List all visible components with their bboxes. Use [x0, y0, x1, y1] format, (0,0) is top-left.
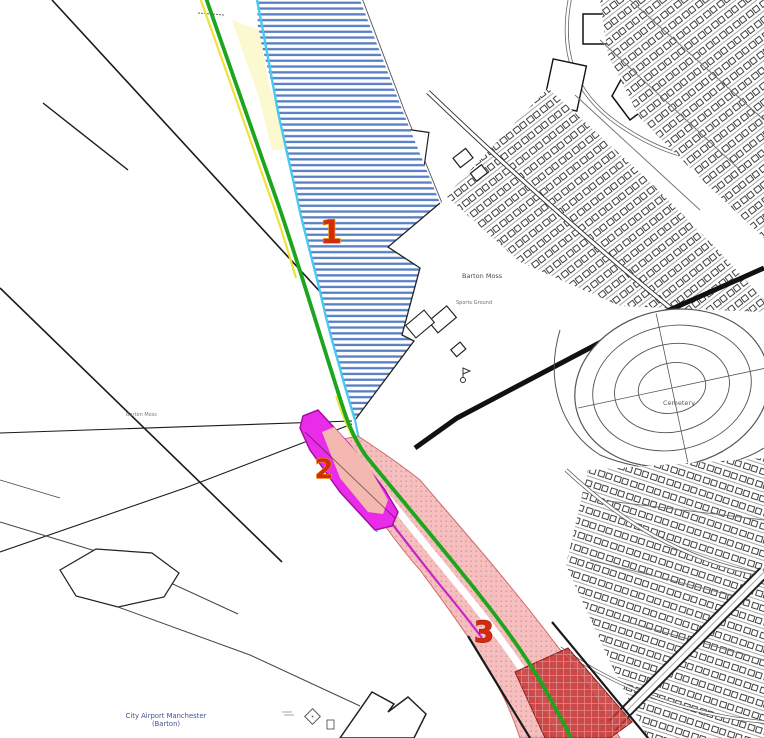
planning-map: 1 2 3 Barton Moss Sports Ground Cemetery…	[0, 0, 764, 738]
label-sports-ground: Sports Ground	[456, 300, 492, 306]
cemetery-grounds	[560, 291, 764, 484]
zone1-hatched-area	[257, 0, 440, 420]
label-barton-moss-west: Barton Moss	[126, 412, 157, 418]
map-base: 1 2 3	[0, 0, 764, 738]
label-cemetery: Cemetery	[663, 399, 695, 407]
zone-2-marker: 2	[315, 454, 334, 485]
label-city-airport: City Airport Manchester (Barton)	[100, 712, 232, 729]
zone-1-marker: 1	[320, 213, 342, 251]
label-barton-moss: Barton Moss	[462, 272, 502, 280]
label-city-airport-line2: (Barton)	[152, 720, 180, 728]
bottom-buildings	[282, 692, 426, 738]
zone-3-marker: 3	[474, 615, 494, 649]
flag-symbol	[461, 368, 471, 383]
residential-north	[428, 0, 764, 332]
label-city-airport-line1: City Airport Manchester	[126, 712, 207, 720]
